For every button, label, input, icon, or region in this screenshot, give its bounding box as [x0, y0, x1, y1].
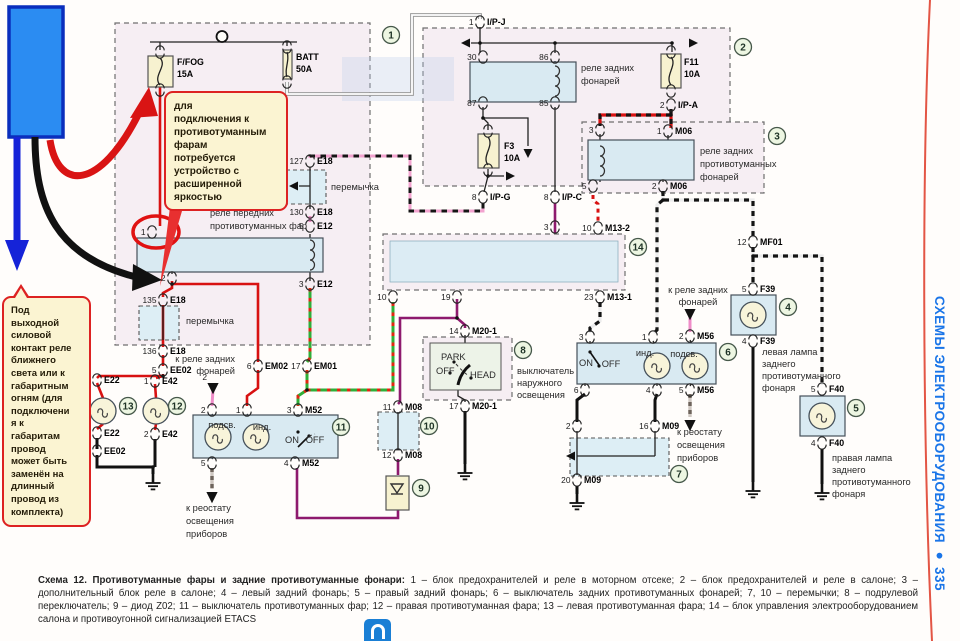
connector-M56-5: 5M56 — [679, 384, 714, 396]
svg-text:10: 10 — [582, 223, 592, 233]
connector-EE02-5: 5EE02 — [152, 364, 192, 376]
svg-text:1: 1 — [642, 332, 647, 342]
svg-text:4: 4 — [742, 336, 747, 346]
svg-text:127: 127 — [290, 156, 304, 166]
svg-text:2: 2 — [740, 42, 746, 53]
svg-text:4: 4 — [785, 302, 791, 313]
park-position-label: PARK — [441, 352, 466, 362]
svg-text:2: 2 — [679, 331, 684, 341]
to-rheostat-note: к реостату — [186, 503, 231, 513]
ext-light-switch-label: освещения — [517, 390, 565, 400]
offpage-arrow-icon — [207, 383, 218, 394]
to-rheostat-note: приборов — [186, 529, 227, 539]
ext-light-switch-label: наружного — [517, 378, 562, 388]
connector-M20-1-14: 14M20-1 — [449, 325, 497, 337]
caption-title: Схема 12. Противотуманные фары и задние … — [38, 575, 405, 586]
right-rear-fog-lamp-label: фонаря — [832, 489, 865, 499]
connector-M08-12: 12M08 — [382, 449, 422, 461]
legend-number-14: 14 — [630, 239, 647, 256]
legend-number-3: 3 — [769, 128, 786, 145]
svg-text:1: 1 — [141, 227, 146, 237]
svg-text:10: 10 — [423, 421, 435, 432]
svg-text:E18: E18 — [170, 346, 186, 356]
fuse-f3-label: F3 — [504, 141, 514, 151]
legend-number-8: 8 — [515, 342, 532, 359]
svg-text:E42: E42 — [162, 429, 178, 439]
svg-text:M20-1: M20-1 — [472, 401, 497, 411]
svg-text:1: 1 — [657, 126, 662, 136]
svg-text:M09: M09 — [584, 475, 601, 485]
rear-lamps-relay-label: реле задних — [581, 63, 634, 73]
connector-MF01-12: 12MF01 — [737, 236, 782, 248]
svg-text:87: 87 — [467, 98, 477, 108]
svg-text:E12: E12 — [317, 221, 333, 231]
off-label: OFF — [602, 359, 621, 369]
jumper-label: перемычка — [186, 316, 235, 326]
svg-text:17: 17 — [449, 401, 459, 411]
to-rheostat-note: приборов — [677, 453, 718, 463]
svg-text:E18: E18 — [317, 156, 333, 166]
rear-fog-relay-label: реле задних — [700, 146, 753, 156]
svg-text:I/P-A: I/P-A — [678, 100, 699, 110]
svg-text:14: 14 — [449, 326, 459, 336]
rear-fog-relay-label: противотуманных — [700, 159, 777, 169]
svg-text:F39: F39 — [760, 336, 775, 346]
legend-number-13: 13 — [120, 398, 137, 415]
fuse-f3-amps: 10A — [504, 153, 521, 163]
fuse-ffog-label: F/FOG — [177, 57, 204, 67]
blue-marker-box — [9, 7, 63, 137]
right-rear-fog-lamp-label: противотуманного — [832, 477, 911, 487]
podsv-label: подсв. — [208, 420, 236, 430]
svg-text:3: 3 — [589, 125, 594, 135]
svg-text:5: 5 — [152, 365, 157, 375]
legend-number-1: 1 — [383, 27, 400, 44]
connector-pin-3: 3 — [579, 331, 594, 343]
svg-text:EM01: EM01 — [314, 361, 337, 371]
connector-pin-4: 4 — [646, 384, 661, 396]
svg-text:12: 12 — [737, 237, 747, 247]
off-label: OFF — [306, 435, 325, 445]
legend-number-5: 5 — [848, 400, 865, 417]
svg-text:2: 2 — [652, 181, 657, 191]
svg-text:5: 5 — [299, 221, 304, 231]
svg-text:I/P-G: I/P-G — [490, 192, 511, 202]
page-side-header: СХЕМЫ ЭЛЕКТРООБОРУДОВАНИЯ ● 335 — [932, 296, 947, 636]
connector-F40-5: 5F40 — [811, 383, 844, 395]
left-front-fog-lamp — [90, 398, 116, 424]
svg-text:16: 16 — [639, 421, 649, 431]
on-label: ON — [579, 358, 593, 368]
diagram-caption: Схема 12. Противотуманные фары и задние … — [38, 575, 918, 627]
to-rheostat-note: освещения — [186, 516, 234, 526]
fuse-ffog-amps: 15A — [177, 69, 194, 79]
svg-text:6: 6 — [725, 347, 731, 358]
legend-number-4: 4 — [780, 299, 797, 316]
page-edge-line — [924, 0, 932, 641]
left-rear-fog-lamp-label: противотуманного — [762, 371, 841, 381]
svg-text:E42: E42 — [162, 376, 178, 386]
svg-text:12: 12 — [382, 450, 392, 460]
right-rear-fog-lamp-label: заднего — [832, 465, 866, 475]
connector-EM02-6: 6EM02 — [247, 360, 288, 372]
connector-pin-10: 10 — [377, 291, 397, 303]
svg-text:3: 3 — [299, 279, 304, 289]
left-rear-fog-lamp-label: фонаря — [762, 383, 795, 393]
connector-M20-1-17: 17M20-1 — [449, 400, 497, 412]
connector-EM01-17: 17EM01 — [291, 360, 337, 372]
left-rear-fog-lamp-label: заднего — [762, 359, 796, 369]
svg-text:E18: E18 — [317, 207, 333, 217]
ground-icon — [458, 464, 473, 479]
blue-arrow-head — [5, 240, 29, 271]
svg-text:135: 135 — [143, 295, 157, 305]
wiring-diagram: F/FOG 15A BATT 50A F3 10A F11 10A реле з… — [0, 0, 960, 641]
svg-text:M13-1: M13-1 — [607, 292, 632, 302]
svg-text:1: 1 — [469, 17, 474, 27]
svg-text:M06: M06 — [675, 126, 692, 136]
svg-text:2: 2 — [660, 100, 665, 110]
svg-text:3: 3 — [544, 222, 549, 232]
rear-lamps-relay-label: фонарей — [581, 76, 620, 86]
legend-number-10: 10 — [421, 418, 438, 435]
svg-text:17: 17 — [291, 361, 301, 371]
svg-text:19: 19 — [441, 292, 451, 302]
svg-text:2: 2 — [201, 405, 206, 415]
svg-text:EM02: EM02 — [265, 361, 288, 371]
connector-F39-5: 5F39 — [742, 283, 775, 295]
connector-M52-3: 3M52 — [287, 404, 322, 416]
svg-text:E18: E18 — [170, 295, 186, 305]
svg-text:M06: M06 — [670, 181, 687, 191]
fuse-batt-amps: 50A — [296, 64, 313, 74]
jumper-box-135-136 — [139, 306, 179, 340]
svg-text:MF01: MF01 — [760, 237, 783, 247]
ind-label: инд. — [636, 348, 654, 358]
connector-pin-1: 1 — [236, 404, 251, 416]
home-icon-arch — [371, 624, 385, 639]
svg-text:I/P-C: I/P-C — [562, 192, 583, 202]
callout-fog-brightness-note: для подключения к противотуманным фарам … — [164, 91, 288, 211]
connector-I/P-J-1: 1I/P-J — [469, 16, 506, 28]
to-rheostat-note: к реостату — [677, 427, 722, 437]
svg-text:7: 7 — [676, 469, 682, 480]
svg-text:E22: E22 — [104, 428, 120, 438]
svg-text:20: 20 — [561, 475, 571, 485]
svg-text:5: 5 — [582, 181, 587, 191]
svg-text:1: 1 — [236, 405, 241, 415]
svg-text:23: 23 — [584, 292, 594, 302]
connector-I/P-G-8: 8I/P-G — [472, 191, 511, 203]
svg-text:1: 1 — [388, 30, 394, 41]
to-rear-relay-note: к реле задних — [668, 285, 728, 295]
svg-text:3: 3 — [774, 131, 780, 142]
connector-E42-2: 2E42 — [144, 428, 178, 440]
head-position-label: HEAD — [470, 370, 496, 380]
right-rear-fog-lamp-label: правая лампа — [832, 453, 893, 463]
callout-tail — [12, 284, 30, 298]
svg-text:F40: F40 — [829, 384, 844, 394]
left-rear-fog-lamp-label: левая лампа — [762, 347, 818, 357]
svg-text:4: 4 — [811, 438, 816, 448]
to-rheostat-note: освещения — [677, 440, 725, 450]
svg-text:5: 5 — [201, 458, 206, 468]
ground-icon — [746, 482, 761, 497]
connector-pin-2: 2 — [201, 404, 216, 416]
legend-number-6: 6 — [720, 344, 737, 361]
home-icon[interactable] — [364, 619, 391, 641]
connector-M13-2-10: 10M13-2 — [582, 222, 630, 234]
connector-EE02-6: 6EE02 — [86, 445, 126, 457]
svg-text:30: 30 — [467, 52, 477, 62]
fuse-batt-label: BATT — [296, 52, 319, 62]
svg-text:85: 85 — [539, 98, 549, 108]
ext-light-switch-label: выключатель — [517, 366, 574, 376]
svg-text:3: 3 — [287, 405, 292, 415]
svg-text:8: 8 — [520, 345, 526, 356]
ground-symbols — [146, 464, 830, 509]
connector-pin-6: 6 — [574, 384, 589, 396]
svg-text:9: 9 — [418, 483, 424, 494]
svg-text:E22: E22 — [104, 375, 120, 385]
svg-text:M56: M56 — [697, 385, 714, 395]
front-fog-relay-label: противотуманных фар — [210, 221, 307, 231]
svg-text:5: 5 — [679, 385, 684, 395]
svg-text:6: 6 — [574, 385, 579, 395]
svg-text:2: 2 — [566, 421, 571, 431]
connector-pin-3: 3 — [544, 221, 559, 233]
svg-text:12: 12 — [171, 401, 183, 412]
svg-text:5: 5 — [853, 403, 859, 414]
svg-text:8: 8 — [544, 192, 549, 202]
block-7-jumper — [570, 438, 669, 476]
svg-text:M20-1: M20-1 — [472, 326, 497, 336]
off-position-label: OFF — [436, 366, 455, 376]
connector-F39-4: 4F39 — [742, 335, 775, 347]
connector-pin-2: 2 — [566, 420, 581, 432]
on-label: ON — [285, 435, 299, 445]
svg-text:1: 1 — [144, 376, 149, 386]
offpage-pin-2: 2 — [202, 372, 207, 382]
ground-icon — [570, 494, 585, 509]
svg-text:M52: M52 — [302, 458, 319, 468]
legend-number-2: 2 — [735, 39, 752, 56]
svg-text:I/P-J: I/P-J — [487, 17, 506, 27]
rear-fog-relay-label: фонарей — [700, 172, 739, 182]
etacs-module — [390, 241, 618, 282]
offpage-arrow-icon — [684, 309, 695, 320]
svg-text:13: 13 — [122, 401, 134, 412]
connector-F40-4: 4F40 — [811, 437, 844, 449]
svg-text:14: 14 — [632, 242, 644, 253]
svg-text:M08: M08 — [405, 402, 422, 412]
to-rear-relay-note: фонарей — [679, 297, 718, 307]
legend-number-11: 11 — [333, 419, 350, 436]
podsv-label: подсв. — [670, 349, 698, 359]
svg-text:6: 6 — [247, 361, 252, 371]
right-front-fog-lamp — [143, 398, 169, 424]
ground-icon — [146, 474, 161, 489]
svg-text:E12: E12 — [317, 279, 333, 289]
offpage-arrow-icon — [206, 492, 217, 503]
svg-text:M56: M56 — [697, 331, 714, 341]
connector-I/P-C-8: 8I/P-C — [544, 191, 583, 203]
legend-number-12: 12 — [169, 398, 186, 415]
svg-text:8: 8 — [472, 192, 477, 202]
svg-text:M08: M08 — [405, 450, 422, 460]
callout-text: Под выходной силовой контакт реле ближне… — [11, 305, 71, 518]
legend-number-7: 7 — [671, 466, 688, 483]
svg-text:4: 4 — [284, 458, 289, 468]
svg-text:5: 5 — [742, 284, 747, 294]
svg-text:10: 10 — [377, 292, 387, 302]
connector-M13-1-23: 23M13-1 — [584, 291, 632, 303]
svg-text:11: 11 — [383, 402, 392, 412]
svg-text:4: 4 — [646, 385, 651, 395]
svg-text:5: 5 — [811, 384, 816, 394]
fuse-f11-amps: 10A — [684, 69, 701, 79]
svg-text:86: 86 — [539, 52, 549, 62]
ground-icon — [815, 484, 830, 499]
rear-lamps-relay — [470, 62, 576, 102]
svg-text:F39: F39 — [760, 284, 775, 294]
svg-text:M13-2: M13-2 — [605, 223, 630, 233]
svg-text:3: 3 — [579, 332, 584, 342]
connector-M56-2: 2M56 — [679, 330, 714, 342]
svg-text:130: 130 — [290, 207, 304, 217]
manual-page: F/FOG 15A BATT 50A F3 10A F11 10A реле з… — [0, 0, 960, 641]
svg-text:2: 2 — [144, 429, 149, 439]
legend-number-9: 9 — [413, 480, 430, 497]
fuse-f11-label: F11 — [684, 57, 699, 67]
svg-text:136: 136 — [143, 346, 157, 356]
svg-text:M09: M09 — [662, 421, 679, 431]
connector-pin-5: 5 — [201, 457, 216, 469]
svg-text:EE02: EE02 — [170, 365, 192, 375]
svg-text:F40: F40 — [829, 438, 844, 448]
svg-text:M52: M52 — [305, 405, 322, 415]
connector-M08-11: 11M08 — [383, 401, 422, 413]
jumper-label: перемычка — [331, 182, 380, 192]
svg-text:EE02: EE02 — [104, 446, 126, 456]
connector-M52-4: 4M52 — [284, 457, 319, 469]
callout-connection-note: Под выходной силовой контакт реле ближне… — [2, 296, 91, 527]
ind-label: инд. — [253, 422, 271, 432]
svg-text:11: 11 — [336, 422, 347, 433]
connector-M09-16: 16M09 — [639, 420, 679, 432]
